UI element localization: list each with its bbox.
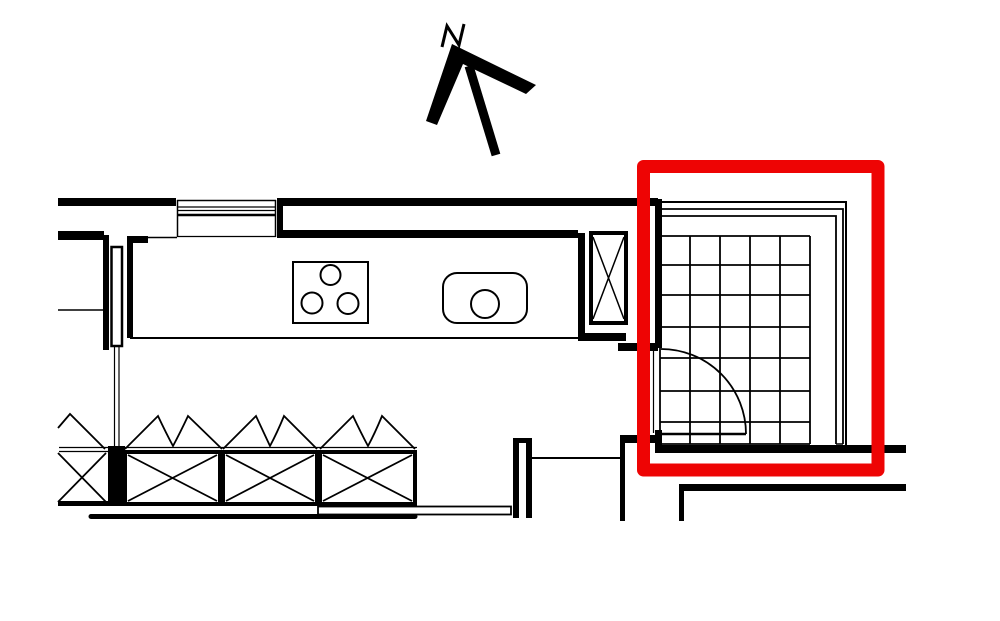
wall-stub <box>127 236 148 243</box>
cabinet-door-symbol-3 <box>320 416 415 449</box>
tray-outline <box>318 507 511 515</box>
cabinet-door-symbol-1 <box>125 416 222 449</box>
floor-plan-svg <box>0 0 1000 621</box>
pier-left <box>513 441 519 518</box>
counter-end-wall <box>127 236 133 338</box>
pocket-door-leaf <box>112 247 123 346</box>
top-wall-right <box>277 198 658 206</box>
floor-plan-canvas <box>0 0 1000 621</box>
room-left-wall-upper <box>655 199 662 348</box>
shaft-column-cross <box>593 237 624 319</box>
top-wall-left <box>58 198 176 206</box>
cooktop-burner-top <box>321 265 341 285</box>
room-bottom-wall <box>655 445 906 453</box>
cabinet-door-symbol-0 <box>58 414 105 449</box>
north-letter-glyph <box>442 24 464 47</box>
wall-step-a <box>578 333 626 341</box>
cabinet-cross-3 <box>323 455 412 501</box>
north-arrow-tail <box>469 66 496 155</box>
cooktop-burner-right <box>338 293 359 314</box>
pier-right <box>526 441 532 518</box>
wall-end-right <box>679 484 684 521</box>
cooktop-burner-left <box>302 293 323 314</box>
cabinet-partial-cross <box>58 453 106 502</box>
cabinet-door-symbol-2 <box>223 416 317 449</box>
cabinet-cross-1 <box>128 455 217 501</box>
cabinet-jamb <box>108 446 125 506</box>
pocket-jamb-left <box>103 235 109 350</box>
wall-end-left <box>620 435 625 521</box>
cabinet-cross-2 <box>226 455 314 501</box>
kitchen-back-wall <box>277 230 578 238</box>
inner-wall-left <box>58 231 104 240</box>
sink-drain <box>471 290 499 318</box>
lower-room-wall <box>679 484 906 491</box>
kitchen-right-wall <box>578 233 585 341</box>
wall-trim-outer <box>659 202 846 448</box>
